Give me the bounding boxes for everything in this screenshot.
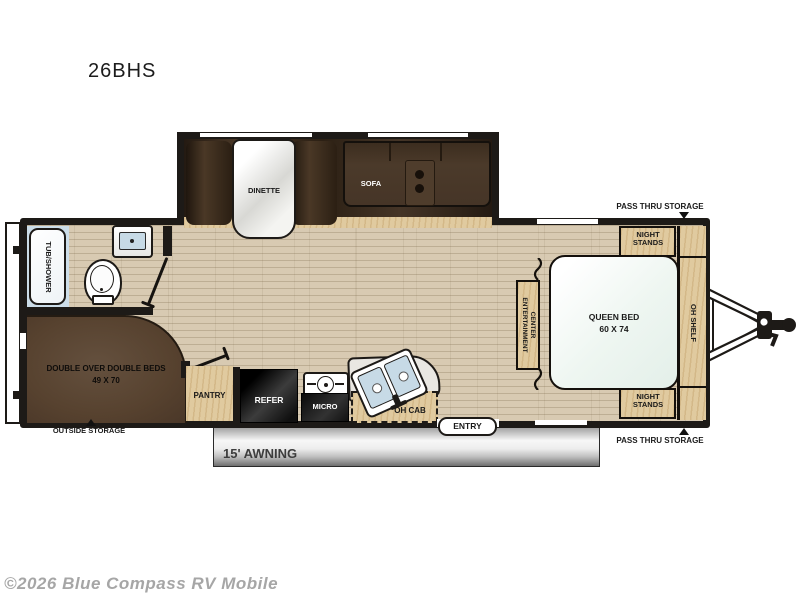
microwave-label: MICRO [302,403,348,411]
wall-stub [163,226,172,256]
sink-drain-icon [397,370,410,383]
window [20,333,26,349]
divider-squiggle-icon [531,258,545,280]
sink-basin [119,232,146,250]
entry-door: ENTRY [438,417,497,436]
dinette-label: DINETTE [234,187,294,195]
microwave: MICRO [301,393,349,422]
divider-squiggle-icon [531,368,545,390]
pass-thru-storage-rear-label: PASS THRU STORAGE [600,203,720,212]
bunk-size-label: 49 X 70 [31,377,181,386]
queen-bed: QUEEN BED 60 X 74 [549,255,679,390]
pantry-label: PANTRY [186,392,233,401]
queen-bed-size-label: 60 X 74 [551,325,677,335]
oh-shelf-label: OH SHELF [689,293,697,353]
nightstand-rear: NIGHT STANDS [619,226,676,257]
tub-shower-icon: TUB/SHOWER [29,228,66,305]
slideout-window [200,133,312,137]
nightstand-front: NIGHT STANDS [619,388,676,419]
wall-divider [233,367,240,421]
sofa-seam [389,143,391,161]
sink-drain-icon [130,239,134,243]
window [537,219,598,224]
nightstand-rear-label: NIGHT STANDS [627,231,669,248]
callout-arrow-icon [679,212,689,219]
toilet-icon [84,259,122,305]
bumper-mount [13,246,22,254]
shelf-divider [680,256,706,258]
entertainment-label: CENTER ENTERTAINMENT [520,294,536,356]
awning-label: 15' AWNING [223,447,297,462]
sofa-seam [440,143,442,161]
cupholder-icon [415,170,424,179]
sofa: SOFA [343,141,491,207]
pass-thru-storage-front-label: PASS THRU STORAGE [600,437,720,446]
bath-sink-icon [112,225,153,258]
outside-storage-label: OUTSIDE STORAGE [39,427,139,435]
shelf-divider [680,386,706,388]
dinette-bench [186,141,232,225]
bunk-label: DOUBLE OVER DOUBLE BEDS [31,365,181,374]
toilet-base [92,295,114,305]
toilet-flush-dot [100,288,103,291]
slideout-window [368,133,468,137]
tub-surround: TUB/SHOWER [27,226,69,308]
sofa-console [405,160,435,206]
page-title: 26BHS [88,60,156,83]
dinette-bench [291,141,337,225]
window [535,420,587,425]
dinette-table: DINETTE [232,139,296,239]
grate-line [307,383,316,385]
burner-ring [317,376,334,393]
tub-shower-label: TUB/SHOWER [43,229,51,305]
trailer-hitch-icon [702,273,800,377]
burner-dot [324,383,328,387]
entertainment-center: CENTER ENTERTAINMENT [516,280,540,370]
nightstand-front-label: NIGHT STANDS [627,393,669,410]
bunk-beds: DOUBLE OVER DOUBLE BEDS 49 X 70 [27,315,187,423]
pantry: PANTRY [186,366,233,421]
awning-bar: 15' AWNING [213,424,600,467]
oh-shelf: OH SHELF [677,226,706,420]
copyright-text: ©2026 Blue Compass RV Mobile [4,574,278,594]
sink-drain-icon [371,382,384,395]
callout-arrow-icon [86,419,96,426]
cupholder-icon [415,184,424,193]
sofa-label: SOFA [349,180,393,188]
callout-arrow-icon [679,428,689,435]
refrigerator-label: REFER [241,396,297,406]
entry-label: ENTRY [440,422,495,432]
bumper-mount [13,391,22,399]
grate-line [335,383,344,385]
queen-bed-label: QUEEN BED [551,313,677,323]
bathroom-wall [27,307,153,315]
refrigerator: REFER [240,369,298,423]
floorplan-page: 26BHS 15' AWNING DINETTE [0,0,800,600]
